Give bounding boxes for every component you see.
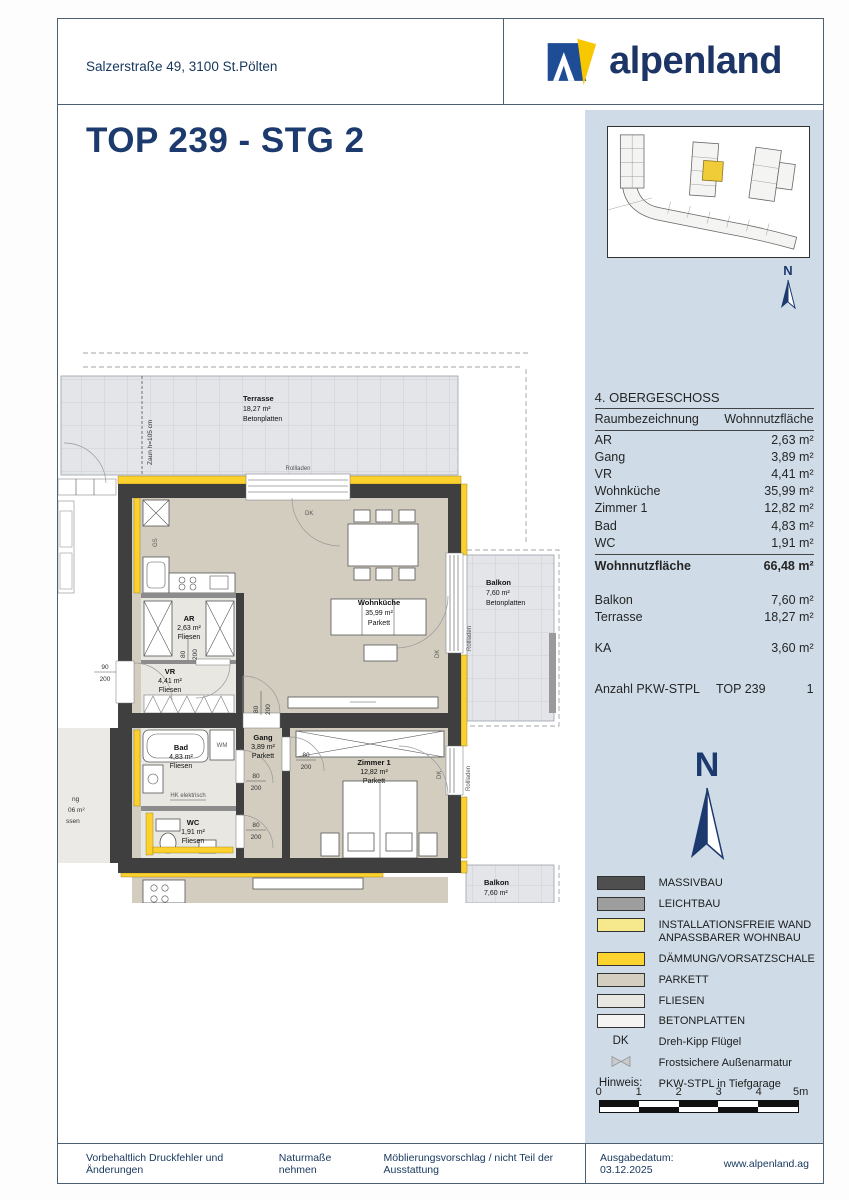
legend-swatch	[597, 994, 645, 1008]
legend-valve-row: Frostsichere Außenarmatur	[597, 1056, 819, 1071]
svg-text:06 m²: 06 m²	[68, 807, 85, 814]
valve-icon	[611, 1056, 631, 1067]
north-arrow-small: N	[775, 262, 801, 319]
brand-logo: alpenland	[504, 19, 823, 104]
svg-text:4,83 m²: 4,83 m²	[169, 754, 193, 761]
svg-text:Parkett: Parkett	[252, 753, 274, 760]
table-row: Balkon7,60 m²	[595, 591, 814, 608]
table-total-row: Wohnnutzfläche66,48 m²	[595, 554, 814, 575]
table-row: Zimmer 112,82 m²	[595, 500, 814, 517]
table-row: AR2,63 m²	[595, 431, 814, 448]
footer-left: Vorbehaltlich Druckfehler und Änderungen…	[58, 1144, 586, 1183]
svg-text:4,41 m²: 4,41 m²	[158, 678, 182, 685]
legend-swatch	[597, 973, 645, 987]
heater-label: HK elektrisch	[170, 793, 205, 799]
site-keymap	[607, 126, 810, 258]
table-row: Bad4,83 m²	[595, 517, 814, 534]
neighbor-label-cut: ng	[72, 796, 80, 803]
legend-item: INSTALLATIONSFREIE WANDANPASSBARER WOHNB…	[597, 918, 819, 947]
washing-machine-label: WM	[217, 743, 228, 749]
svg-text:N: N	[694, 746, 719, 784]
svg-text:Bad: Bad	[174, 743, 189, 752]
legend-swatch	[597, 918, 645, 932]
legend-swatch	[597, 1014, 645, 1028]
room-table: 4. OBERGESCHOSS RaumbezeichnungWohnnutzf…	[595, 390, 814, 696]
drawing-area: TOP 239 - STG 2 Zaun h=105 cm	[58, 105, 585, 1143]
dk-label: DK	[305, 511, 313, 517]
rollladen-label: Rollladen	[285, 466, 310, 472]
svg-text:N: N	[783, 263, 792, 278]
svg-text:80: 80	[253, 705, 260, 713]
svg-text:7,60 m²: 7,60 m²	[484, 890, 508, 897]
legend-item: MASSIVBAU	[597, 876, 819, 891]
svg-text:80: 80	[302, 752, 310, 759]
page-frame: Salzerstraße 49, 3100 St.Pölten alpenlan…	[57, 18, 824, 1184]
fence-label: Zaun h=105 cm	[147, 420, 154, 465]
table-row: VR4,41 m²	[595, 465, 814, 482]
north-arrow-large: N	[677, 746, 737, 876]
svg-text:Parkett: Parkett	[368, 620, 390, 627]
footer-right: Ausgabedatum: 03.12.2025 www.alpenland.a…	[586, 1144, 823, 1183]
legend: MASSIVBAU LEICHTBAU INSTALLATIONSFREIE W…	[597, 876, 819, 1097]
svg-text:Gang: Gang	[253, 733, 273, 742]
svg-text:ssen: ssen	[66, 818, 80, 825]
legend-swatch	[597, 952, 645, 966]
rollladen-label: Rollladen	[467, 626, 473, 651]
dk-label: DK	[437, 771, 443, 779]
svg-text:90: 90	[101, 664, 109, 671]
table-row: Gang3,89 m²	[595, 448, 814, 465]
coffee-table	[364, 645, 397, 661]
website-link[interactable]: www.alpenland.ag	[724, 1158, 809, 1170]
svg-text:80: 80	[252, 773, 260, 780]
address-text: Salzerstraße 49, 3100 St.Pölten	[86, 59, 277, 74]
dishwasher-label: GS	[153, 538, 159, 547]
svg-text:Fliesen: Fliesen	[170, 763, 193, 770]
dk-label: DK	[435, 650, 441, 658]
header: Salzerstraße 49, 3100 St.Pölten alpenlan…	[58, 19, 823, 105]
terrace: Zaun h=105 cm Terrasse 18,27 m² Betonpla…	[61, 376, 458, 475]
svg-text:2,63 m²: 2,63 m²	[177, 625, 201, 632]
svg-text:80: 80	[252, 822, 260, 829]
vr-wardrobe	[144, 695, 234, 713]
svg-text:200: 200	[251, 785, 262, 792]
table-row: Terrasse18,27 m²	[595, 608, 814, 625]
main: TOP 239 - STG 2 Zaun h=105 cm	[58, 105, 823, 1143]
svg-text:Fliesen: Fliesen	[182, 838, 205, 845]
issue-date: Ausgabedatum: 03.12.2025	[600, 1152, 724, 1176]
brand-name: alpenland	[609, 40, 782, 83]
svg-text:Parkett: Parkett	[363, 778, 385, 785]
legend-item: DÄMMUNG/VORSATZSCHALE	[597, 952, 819, 967]
footer: Vorbehaltlich Druckfehler und Änderungen…	[58, 1143, 823, 1183]
svg-text:200: 200	[192, 649, 199, 660]
legend-swatch	[597, 897, 645, 911]
sidebar: N 4. OBERGESCHOSS RaumbezeichnungWohnnut…	[585, 105, 823, 1143]
svg-text:18,27 m²: 18,27 m²	[243, 406, 271, 413]
scale-bar-strip	[599, 1100, 799, 1113]
page-title: TOP 239 - STG 2	[86, 121, 365, 161]
table-row: Wohnküche35,99 m²	[595, 483, 814, 500]
svg-text:200: 200	[251, 834, 262, 841]
legend-swatch	[597, 876, 645, 890]
scale-labels: 0 1 2 3 4 5m	[599, 1086, 809, 1100]
svg-text:Balkon: Balkon	[486, 578, 511, 587]
svg-text:1,91 m²: 1,91 m²	[181, 829, 205, 836]
svg-text:Zimmer 1: Zimmer 1	[357, 758, 390, 767]
highlighted-unit	[702, 160, 723, 181]
svg-text:200: 200	[265, 704, 272, 715]
privacy-screen	[549, 633, 556, 713]
footer-disclaimer: Vorbehaltlich Druckfehler und Änderungen	[86, 1152, 261, 1176]
sideboard	[288, 697, 438, 708]
legend-item: BETONPLATTEN	[597, 1014, 819, 1029]
svg-text:Fliesen: Fliesen	[178, 634, 201, 641]
svg-text:AR: AR	[184, 614, 195, 623]
svg-text:200: 200	[301, 764, 312, 771]
floor-heading: 4. OBERGESCHOSS	[595, 390, 814, 409]
svg-text:35,99 m²: 35,99 m²	[365, 610, 393, 617]
table-header: RaumbezeichnungWohnnutzfläche	[595, 409, 814, 431]
svg-text:WC: WC	[187, 818, 200, 827]
balcony-lower	[466, 865, 554, 903]
svg-text:Betonplatten: Betonplatten	[243, 416, 282, 423]
parking-row: Anzahl PKW-STPL TOP 239 1	[595, 682, 814, 696]
svg-text:VR: VR	[165, 667, 176, 676]
svg-text:Betonplatten: Betonplatten	[486, 600, 525, 607]
table-row: WC1,91 m²	[595, 534, 814, 551]
footer-note2: Möblierungsvorschlag / nicht Teil der Au…	[384, 1152, 585, 1176]
header-address-box: Salzerstraße 49, 3100 St.Pölten	[58, 19, 504, 104]
svg-text:7,60 m²: 7,60 m²	[486, 590, 510, 597]
svg-text:Fliesen: Fliesen	[159, 687, 182, 694]
floorplan: Zaun h=105 cm Terrasse 18,27 m² Betonpla…	[58, 333, 586, 903]
footer-note1: Naturmaße nehmen	[279, 1152, 362, 1176]
legend-item: PARKETT	[597, 973, 819, 988]
table-row: KA3,60 m²	[595, 639, 814, 656]
svg-text:12,82 m²: 12,82 m²	[360, 769, 388, 776]
legend-item: LEICHTBAU	[597, 897, 819, 912]
svg-text:Balkon: Balkon	[484, 878, 509, 887]
svg-text:80: 80	[180, 650, 187, 658]
svg-text:3,89 m²: 3,89 m²	[251, 744, 275, 751]
dining-set	[348, 510, 418, 580]
legend-dk-row: DK Dreh-Kipp Flügel	[597, 1035, 819, 1050]
rollladen-label: Rollladen	[466, 766, 472, 791]
svg-text:Wohnküche: Wohnküche	[358, 598, 400, 607]
scale-bar: 0 1 2 3 4 5m	[599, 1086, 809, 1113]
svg-text:200: 200	[100, 676, 111, 683]
room-label: Terrasse	[243, 394, 274, 403]
alpenland-logo-icon	[545, 36, 597, 88]
legend-item: FLIESEN	[597, 994, 819, 1009]
